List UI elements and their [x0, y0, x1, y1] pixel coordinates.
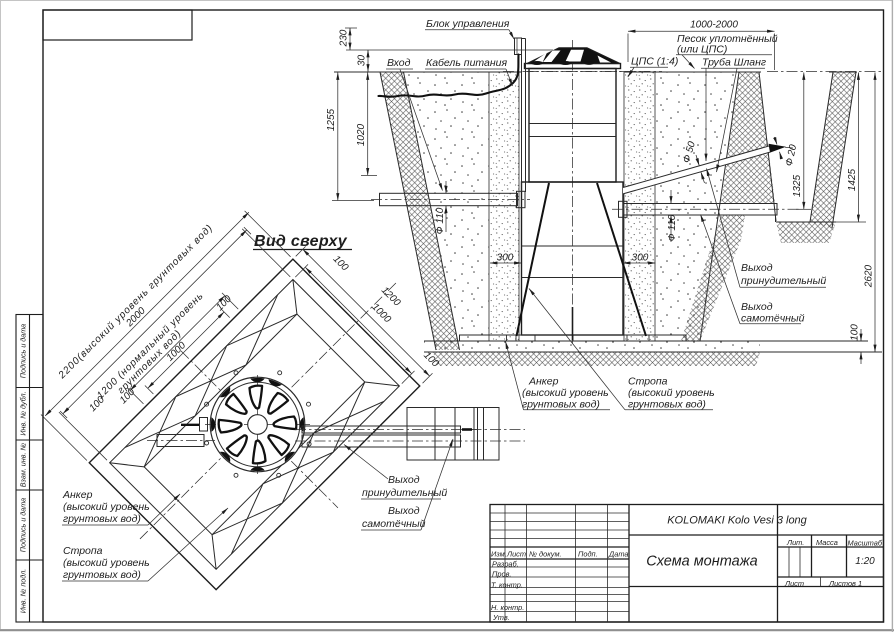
svg-text:(высокий уровень: (высокий уровень	[628, 387, 715, 399]
svg-text:Выход: Выход	[741, 262, 773, 274]
svg-text:Лист: Лист	[784, 579, 804, 588]
svg-text:Ф 110: Ф 110	[435, 207, 446, 234]
svg-text:Схема монтажа: Схема монтажа	[646, 554, 758, 570]
svg-text:Разраб.: Разраб.	[492, 560, 519, 569]
svg-text:1325: 1325	[792, 174, 803, 197]
svg-text:Вид сверху: Вид сверху	[254, 233, 348, 250]
svg-text:ЦПС (1:4): ЦПС (1:4)	[631, 56, 678, 68]
svg-text:Выход: Выход	[388, 505, 420, 517]
svg-text:Стропа: Стропа	[628, 376, 668, 388]
svg-text:100: 100	[850, 324, 861, 341]
svg-text:230: 230	[339, 29, 350, 47]
svg-text:Подп.: Подп.	[578, 550, 598, 559]
svg-text:грунтовых вод): грунтовых вод)	[63, 513, 141, 525]
svg-text:300: 300	[632, 253, 649, 264]
svg-text:Листов 1: Листов 1	[828, 579, 862, 588]
svg-text:грунтовых вод): грунтовых вод)	[522, 399, 600, 411]
svg-text:(высокий уровень: (высокий уровень	[63, 557, 150, 569]
svg-text:грунтовых вод): грунтовых вод)	[63, 569, 141, 581]
svg-text:Дата: Дата	[608, 550, 629, 559]
svg-text:(высокий уровень: (высокий уровень	[522, 387, 609, 399]
svg-text:Т. контр.: Т. контр.	[491, 581, 523, 590]
svg-text:Подпись и дата: Подпись и дата	[19, 324, 28, 378]
svg-text:принудительный: принудительный	[362, 487, 447, 499]
svg-text:1000-2000: 1000-2000	[690, 20, 738, 31]
svg-text:Ф 110: Ф 110	[667, 214, 678, 241]
svg-text:Выход: Выход	[388, 474, 420, 486]
svg-text:(высокий уровень: (высокий уровень	[63, 501, 150, 513]
svg-text:1255: 1255	[326, 108, 337, 131]
svg-text:Масштаб: Масштаб	[848, 539, 883, 548]
svg-text:(или ЦПС): (или ЦПС)	[677, 44, 727, 56]
svg-text:принудительный: принудительный	[741, 275, 826, 287]
svg-text:1425: 1425	[847, 168, 858, 191]
svg-text:самотёчный: самотёчный	[741, 313, 805, 325]
svg-text:Изм.: Изм.	[491, 550, 507, 559]
svg-text:Вход: Вход	[387, 57, 411, 69]
svg-text:300: 300	[497, 253, 514, 264]
svg-text:Анкер: Анкер	[528, 376, 559, 388]
svg-text:Н. контр.: Н. контр.	[491, 603, 524, 612]
svg-text:Инв. № подл.: Инв. № подл.	[19, 569, 28, 614]
svg-text:Инв. № дубл.: Инв. № дубл.	[19, 391, 28, 435]
svg-text:30: 30	[357, 55, 368, 67]
svg-text:Лист: Лист	[506, 550, 526, 559]
svg-text:Утв.: Утв.	[492, 613, 510, 622]
svg-text:2620: 2620	[864, 264, 875, 288]
svg-text:Анкер: Анкер	[62, 489, 93, 501]
svg-text:грунтовых вод): грунтовых вод)	[628, 399, 706, 411]
svg-text:Лит.: Лит.	[786, 538, 804, 547]
svg-text:1:20: 1:20	[855, 556, 875, 567]
svg-text:самотёчный: самотёчный	[362, 518, 426, 530]
svg-text:Выход: Выход	[741, 301, 773, 313]
svg-text:Взам. инв. №: Взам. инв. №	[19, 443, 28, 488]
svg-text:Труба Шланг: Труба Шланг	[702, 57, 766, 69]
svg-text:Масса: Масса	[816, 538, 838, 547]
svg-text:Подпись и дата: Подпись и дата	[19, 498, 28, 552]
svg-text:№ докум.: № докум.	[529, 550, 562, 559]
svg-text:Блок управления: Блок управления	[426, 18, 510, 30]
svg-text:Кабель питания: Кабель питания	[426, 57, 507, 69]
svg-text:1020: 1020	[356, 123, 367, 146]
svg-text:Пров.: Пров.	[492, 570, 512, 579]
svg-text:KOLOMAKI Kolo Vesi 3 long: KOLOMAKI Kolo Vesi 3 long	[667, 515, 807, 527]
svg-text:Стропа: Стропа	[63, 545, 103, 557]
